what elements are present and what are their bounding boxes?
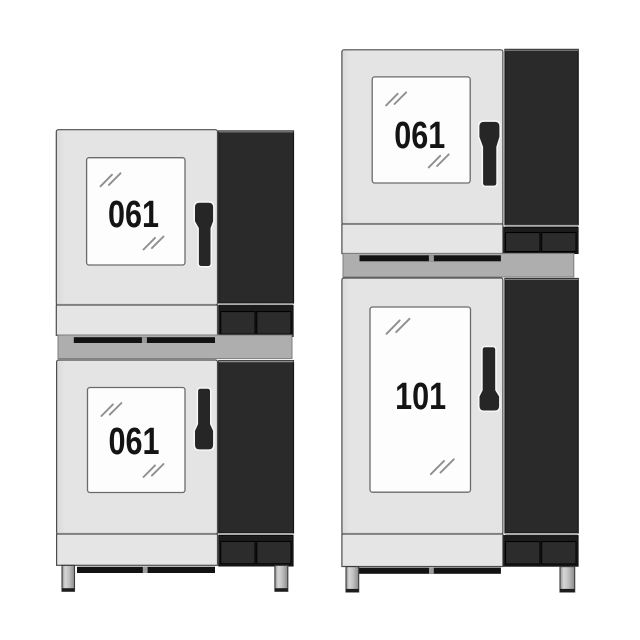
svg-text:061: 061 (394, 116, 445, 157)
svg-text:061: 061 (108, 194, 159, 235)
svg-text:061: 061 (109, 421, 160, 462)
svg-text:101: 101 (395, 376, 446, 417)
